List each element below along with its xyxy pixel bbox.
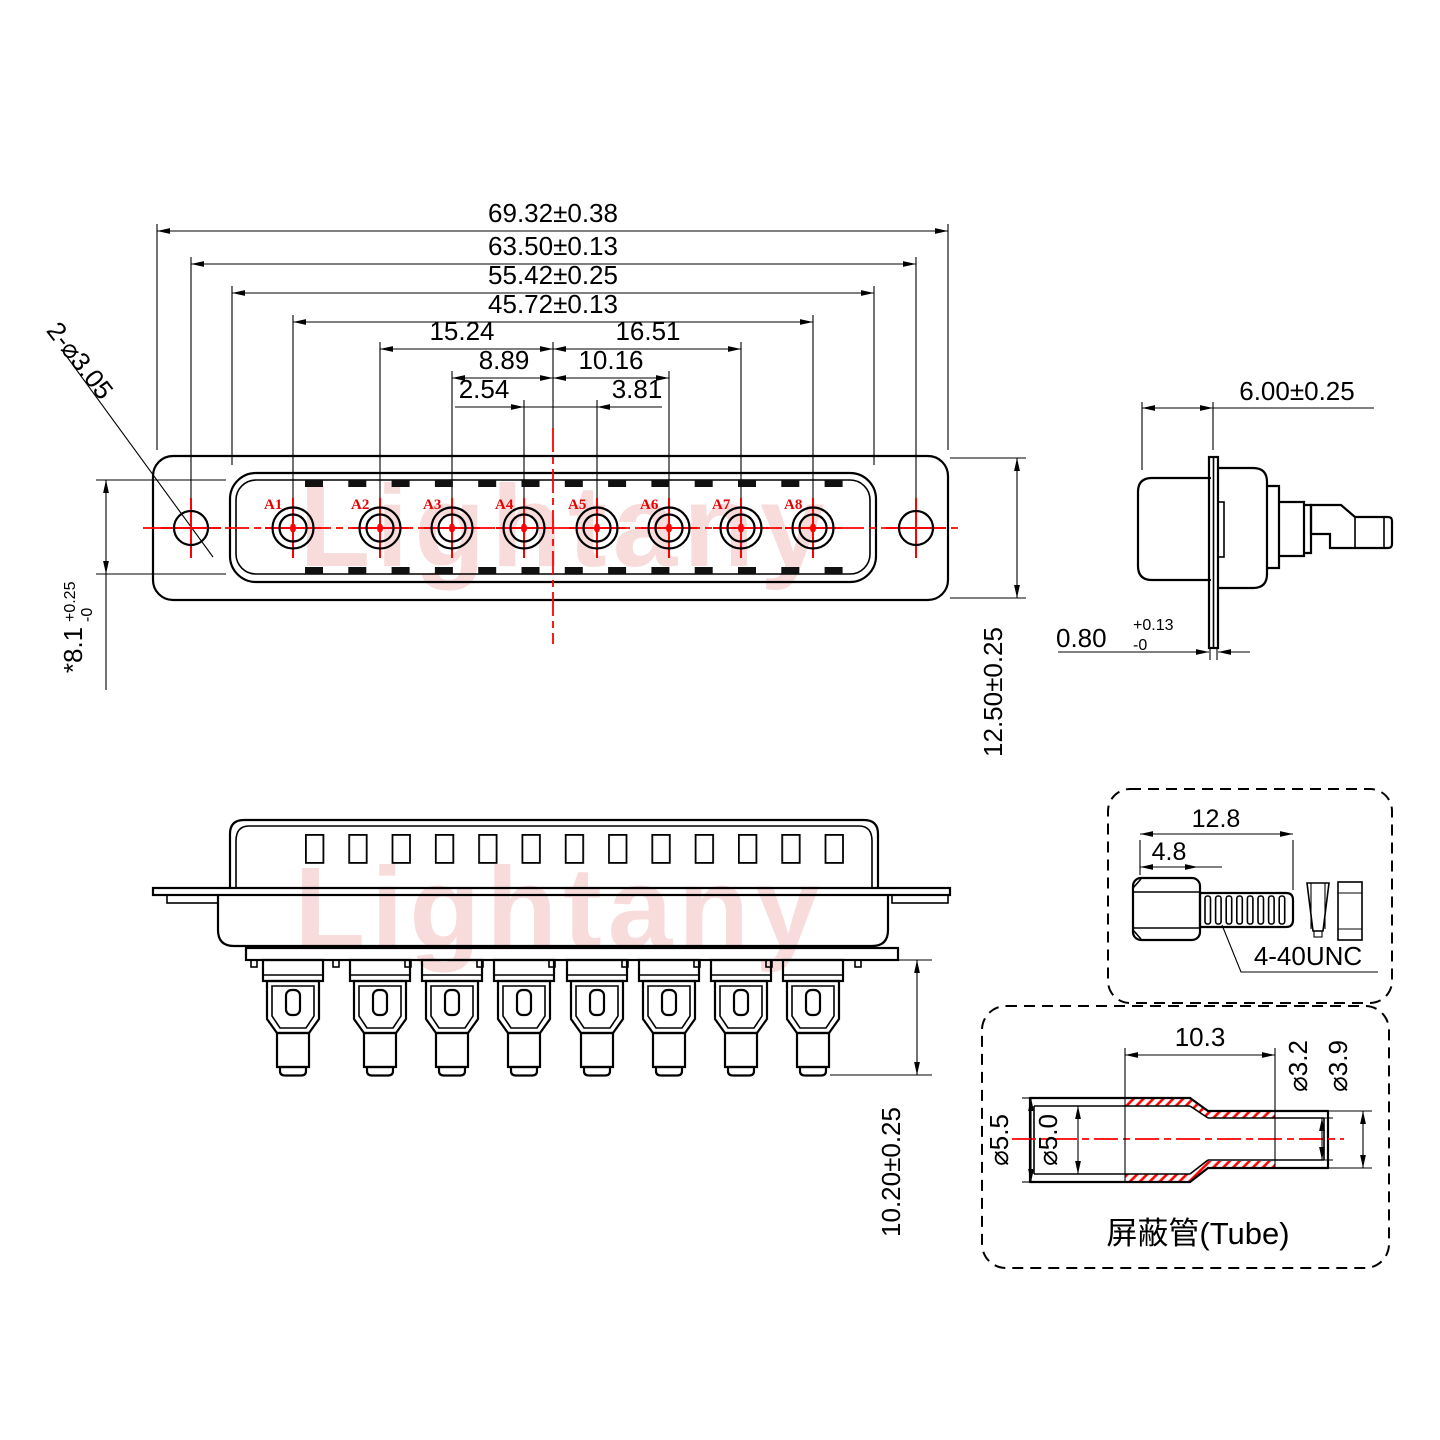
dim-a2-center: 15.24 (429, 316, 494, 346)
dim-center-a6: 10.16 (578, 345, 643, 375)
dim-shell-height-tol-dn: -0 (79, 608, 96, 622)
tube-detail: 10.3 ⌀5.5 ⌀5.0 ⌀3.2 ⌀3.9 屏蔽管(Tube) (982, 1006, 1389, 1268)
drawing-sheet: Lightany Lightany (0, 0, 1440, 1440)
tube-dimension-lines (1022, 1048, 1372, 1182)
contact-label-a7: A7 (712, 497, 731, 513)
dim-flange-height: 12.50±0.25 (978, 627, 1008, 757)
side-shell (1138, 478, 1210, 580)
dim-a3-center: 8.89 (479, 345, 530, 375)
screw-end-part (1338, 882, 1362, 940)
dim-tube-small-outer: ⌀3.9 (1323, 1040, 1353, 1092)
dim-shell-height: *8.1 (58, 627, 88, 673)
dim-contact-span: 45.72±0.13 (488, 289, 618, 319)
dim-pot-length: 10.20±0.25 (876, 1107, 906, 1237)
tube-outline (1030, 1098, 1328, 1182)
side-rear-body (1218, 468, 1267, 588)
dim-shell-width: 55.42±0.25 (488, 260, 618, 290)
contact-label-a2: A2 (351, 497, 369, 513)
contact-label-a3: A3 (423, 497, 441, 513)
dim-tube-big-outer: ⌀5.5 (984, 1114, 1014, 1166)
rear-dimension-lines (830, 960, 932, 1075)
dim-tube-big-inner: ⌀5.0 (1033, 1114, 1063, 1166)
side-contact-pin (1311, 505, 1392, 548)
contact-label-a6: A6 (640, 497, 659, 513)
dim-a4-center: 2.54 (459, 374, 510, 404)
dim-hole-span: 63.50±0.13 (488, 231, 618, 261)
dim-mounting-holes: 2-⌀3.05 (41, 316, 120, 405)
contact-label-a8: A8 (784, 497, 802, 513)
screw-head (1133, 878, 1200, 940)
dim-screw-head: 4.8 (1152, 838, 1187, 866)
tube-label: 屏蔽管(Tube) (1106, 1216, 1289, 1251)
screw-thread-label: 4-40UNC (1254, 941, 1362, 971)
dim-center-a5: 3.81 (612, 374, 663, 404)
contact-label-a5: A5 (568, 497, 586, 513)
contact-label-a1: A1 (264, 497, 282, 513)
dim-screw-length: 12.8 (1192, 805, 1241, 833)
dim-center-a7: 16.51 (615, 316, 680, 346)
screw-detail: 12.8 4.8 4-40UNC (1108, 789, 1392, 1003)
dim-shell-height-group: *8.1 +0.25 -0 (58, 581, 96, 673)
dim-tube-small-inner: ⌀3.2 (1283, 1040, 1313, 1092)
dim-front-depth: 6.00±0.25 (1239, 376, 1354, 406)
dim-shell-height-tol-up: +0.25 (62, 581, 79, 622)
rear-shell-slots (305, 834, 844, 864)
screw-thread-ridges (1205, 896, 1285, 924)
side-view: 6.00±0.25 0.80 +0.13 -0 (1056, 376, 1392, 660)
side-extension-lines (1058, 402, 1374, 660)
contact-label-a4: A4 (495, 497, 514, 513)
dim-flange-tol-up: +0.13 (1133, 617, 1174, 634)
dim-flange-tol-dn: -0 (1133, 637, 1147, 654)
dim-tube-shrink-length: 10.3 (1175, 1022, 1226, 1052)
dim-flange-thickness: 0.80 (1056, 623, 1107, 653)
screw-wedge-part (1307, 883, 1329, 931)
connector-technical-drawing: Lightany Lightany (0, 0, 1440, 1440)
dim-overall-width: 69.32±0.38 (488, 198, 618, 228)
